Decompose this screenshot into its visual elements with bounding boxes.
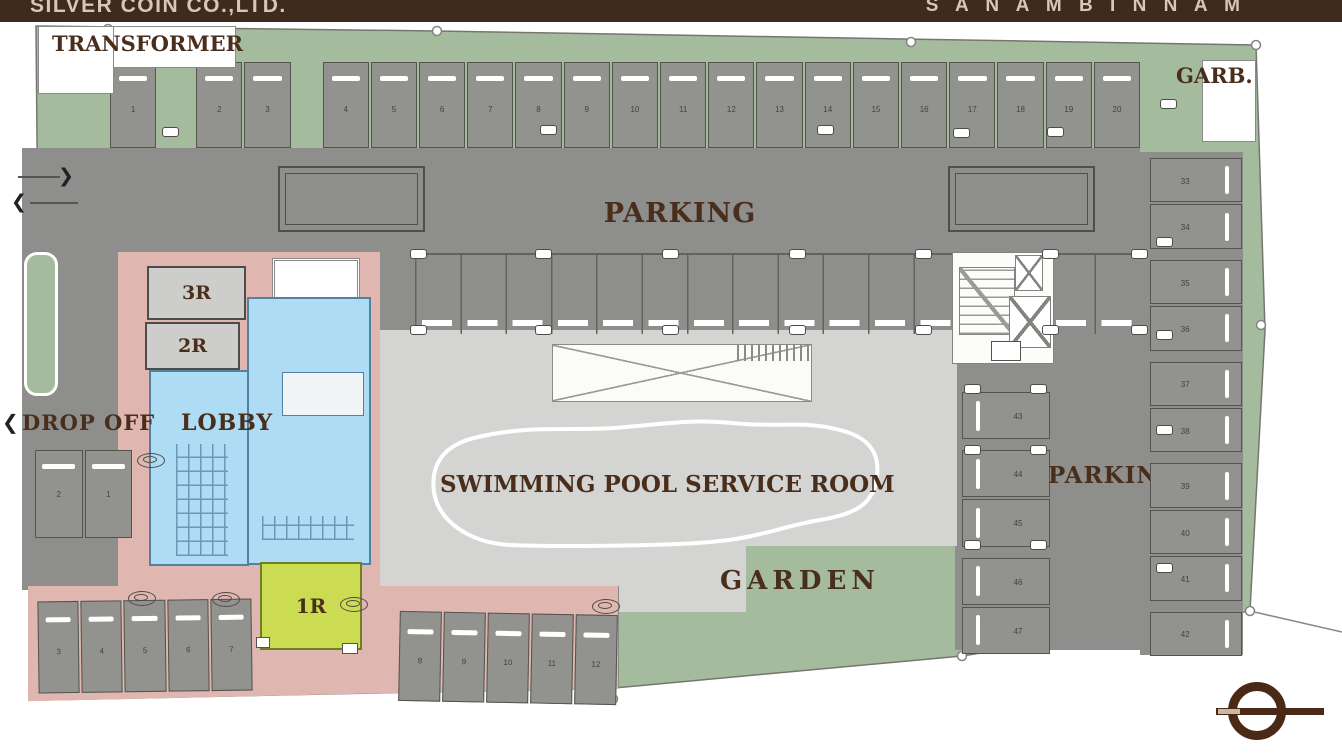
stall-marking	[1225, 213, 1230, 241]
wheel-stop-icon	[1047, 127, 1064, 137]
utility-box	[256, 637, 270, 648]
stall-number: 18	[998, 105, 1042, 114]
stall-number: 6	[169, 645, 208, 655]
stall-marking	[1225, 472, 1230, 500]
parking-stall: 15	[853, 62, 899, 148]
parking-stall: 13	[756, 62, 802, 148]
wheel-stop-icon	[1156, 330, 1173, 340]
stall-marking	[408, 629, 434, 634]
stall-marking	[218, 615, 243, 620]
stall-number: 7	[212, 645, 251, 655]
parking-stall: 6	[167, 599, 209, 692]
stall-marking	[452, 630, 478, 635]
stall-number: 42	[1151, 630, 1219, 639]
room-2r: 2R	[145, 322, 240, 370]
stall-number: 9	[565, 105, 609, 114]
stall-number: 7	[468, 105, 512, 114]
stall-marking	[976, 615, 981, 645]
parking-stall: 8	[515, 62, 561, 148]
stall-marking	[976, 459, 981, 489]
stall-number: 45	[987, 519, 1049, 528]
exit-arrow-line	[30, 202, 78, 204]
lobby-furniture	[176, 444, 228, 556]
stall-marking	[1055, 76, 1083, 81]
stall-marking	[1225, 620, 1230, 648]
stall-marking	[119, 76, 147, 81]
room-2r-label: 2R	[178, 335, 207, 357]
stall-number: 6	[420, 105, 464, 114]
stall-number: 33	[1151, 177, 1219, 186]
wheel-stop-icon	[964, 540, 981, 550]
stall-number: 11	[532, 658, 572, 668]
stall-number: 3	[245, 105, 289, 114]
arrow-right-icon: ❯	[58, 165, 74, 187]
stall-marking	[1225, 268, 1230, 296]
parking-stall: 11	[530, 613, 574, 704]
stall-number: 37	[1151, 380, 1219, 389]
lobby-inner-room	[282, 372, 364, 416]
stall-number: 9	[444, 657, 484, 667]
stall-marking	[1225, 370, 1230, 398]
wheel-stop-icon	[789, 249, 806, 259]
stall-number: 12	[709, 105, 753, 114]
lobby-label: LOBBY	[181, 410, 273, 436]
parking-stall: 35	[1150, 260, 1242, 304]
stall-marking	[1225, 416, 1230, 444]
wheel-stop-icon	[1131, 249, 1148, 259]
planter-icon	[137, 453, 165, 468]
stall-marking	[814, 76, 842, 81]
north-indicator-icon	[1216, 708, 1324, 715]
parking-stall: 18	[997, 62, 1043, 148]
stall-number: 34	[1151, 223, 1219, 232]
parking-stall: 20	[1094, 62, 1140, 148]
stall-marking	[621, 76, 649, 81]
ramp	[552, 344, 812, 402]
stall-number: 4	[82, 646, 121, 656]
parking-stall: 12	[574, 614, 618, 705]
parking-stall: 39	[1150, 463, 1242, 507]
parking-stall: 7	[210, 599, 252, 692]
stall-number: 17	[950, 105, 994, 114]
parking-stall: 47	[962, 607, 1050, 654]
stall-marking	[910, 76, 938, 81]
wheel-stop-icon	[1030, 540, 1047, 550]
stall-marking	[332, 76, 360, 81]
garden-label: GARDEN	[700, 566, 900, 596]
shaft-icon	[1015, 255, 1043, 291]
pool-service-room-label: SWIMMING POOL SERVICE ROOM	[440, 471, 860, 498]
parking-stall: 43	[962, 392, 1050, 439]
parking-stall: 10	[612, 62, 658, 148]
drop-off-stalls: 2 1	[35, 450, 132, 538]
wheel-stop-icon	[915, 249, 932, 259]
parking-stall: 10	[486, 613, 530, 704]
stall-marking	[92, 464, 125, 469]
stall-marking	[976, 566, 981, 596]
stall-number: 14	[806, 105, 850, 114]
aisle-planter-frame-left	[278, 166, 425, 232]
stall-number: 13	[757, 105, 801, 114]
stall-number: 4	[324, 105, 368, 114]
stall-number: 40	[1151, 529, 1219, 538]
site-plan: 1 2 3 4 5 6 7 8 9 10	[0, 0, 1342, 754]
stall-marking	[1103, 76, 1131, 81]
wheel-stop-icon	[915, 325, 932, 335]
parking-stall: 14	[805, 62, 851, 148]
parking-stall: 3	[244, 62, 290, 148]
wheel-stop-icon	[1156, 425, 1173, 435]
stall-marking	[669, 76, 697, 81]
utility-box	[342, 643, 358, 654]
stall-number: 5	[125, 646, 164, 656]
parking-row-top: 1 2 3 4 5 6 7 8 9 10	[110, 62, 1140, 148]
parking-stall: 40	[1150, 510, 1242, 554]
wheel-stop-icon	[162, 127, 179, 137]
stall-marking	[958, 76, 986, 81]
parking-stall: 6	[419, 62, 465, 148]
arrow-left-icon: ❮	[2, 410, 19, 434]
stall-number: 47	[987, 627, 1049, 636]
wheel-stop-icon	[662, 325, 679, 335]
parking-stall: 9	[564, 62, 610, 148]
stall-marking	[132, 616, 157, 621]
stall-marking	[573, 76, 601, 81]
stall-number: 8	[400, 656, 440, 666]
stall-number: 35	[1151, 279, 1219, 288]
stair-icon	[959, 267, 1015, 335]
stall-number: 12	[576, 659, 616, 669]
wheel-stop-icon	[662, 249, 679, 259]
stall-marking	[976, 401, 981, 431]
stall-number: 10	[488, 658, 528, 668]
wheel-stop-icon	[1160, 99, 1177, 109]
stall-number: 3	[39, 647, 78, 657]
wheel-stop-icon	[410, 249, 427, 259]
stall-number: 1	[86, 490, 132, 499]
stall-number: 1	[111, 105, 155, 114]
parking-stall: 1	[85, 450, 133, 538]
aisle-planter-frame-right	[948, 166, 1095, 232]
arrow-left-icon: ❮	[11, 191, 27, 213]
parking-stall: 4	[81, 600, 123, 693]
company-title: SILVER COIN CO.,LTD.	[30, 0, 287, 18]
stall-number: 41	[1151, 575, 1219, 584]
planter-icon	[212, 592, 240, 607]
stall-number: 5	[372, 105, 416, 114]
wheel-stop-icon	[964, 384, 981, 394]
stall-number: 8	[516, 105, 560, 114]
wheel-stop-icon	[540, 125, 557, 135]
wheel-stop-icon	[1156, 237, 1173, 247]
stall-marking	[380, 76, 408, 81]
stall-marking	[1225, 518, 1230, 546]
stall-marking	[253, 76, 281, 81]
parking-stall: 11	[660, 62, 706, 148]
stall-number: 46	[987, 578, 1049, 587]
stall-number: 20	[1095, 105, 1139, 114]
lobby-furniture	[262, 516, 354, 540]
title-banner: SILVER COIN CO.,LTD. S A N A M B I N N A…	[0, 0, 1342, 22]
parking-stall: 36	[1150, 306, 1242, 350]
wheel-stop-icon	[1030, 384, 1047, 394]
parking-stall: 33	[1150, 158, 1242, 202]
parking-stall: 12	[708, 62, 754, 148]
parking-stall: 7	[467, 62, 513, 148]
stall-number: 43	[987, 412, 1049, 421]
stall-marking	[524, 76, 552, 81]
stall-number: 19	[1047, 105, 1091, 114]
stall-marking	[1225, 564, 1230, 592]
stall-marking	[175, 615, 200, 620]
parking-column-inner: 43 44 45 46 47	[962, 392, 1050, 654]
transformer-label: TRANSFORMER	[52, 31, 243, 56]
room-3r: 3R	[147, 266, 246, 320]
wheel-stop-icon	[953, 128, 970, 138]
stall-marking	[862, 76, 890, 81]
stall-marking	[428, 76, 456, 81]
parking-stall: 5	[371, 62, 417, 148]
planter-icon	[592, 599, 620, 614]
stall-marking	[1225, 166, 1230, 194]
stall-marking	[584, 632, 610, 637]
parking-stall: 1	[110, 62, 156, 148]
planter-icon	[128, 591, 156, 606]
stall-marking	[1006, 76, 1034, 81]
wheel-stop-icon	[535, 249, 552, 259]
wheel-stop-icon	[535, 325, 552, 335]
stall-marking	[205, 76, 233, 81]
wheel-stop-icon	[817, 125, 834, 135]
planter-icon	[340, 597, 368, 612]
stall-marking	[89, 616, 114, 621]
building-core	[952, 252, 1054, 364]
parking-stall: 44	[962, 450, 1050, 497]
wheel-stop-icon	[1156, 563, 1173, 573]
stall-marking	[1225, 314, 1230, 342]
wheel-stop-icon	[964, 445, 981, 455]
wheel-stop-icon	[1030, 445, 1047, 455]
wheel-stop-icon	[789, 325, 806, 335]
stall-marking	[717, 76, 745, 81]
parking-column-right: 33 34 35 36 37 38 39 40 41 42	[1150, 158, 1242, 656]
stall-number: 2	[36, 490, 82, 499]
parking-stall: 2	[196, 62, 242, 148]
parking-stall: 2	[35, 450, 83, 538]
stall-number: 15	[854, 105, 898, 114]
parking-stall: 9	[442, 612, 486, 703]
room-1r-label: 1R	[296, 594, 327, 618]
stall-number: 2	[197, 105, 241, 114]
stall-marking	[765, 76, 793, 81]
parking-stall: 16	[901, 62, 947, 148]
parking-stall: 5	[124, 600, 166, 693]
garbage-label: GARB.	[1176, 63, 1253, 88]
wheel-stop-icon	[1042, 325, 1059, 335]
parking-stall: 8	[398, 611, 442, 702]
parking-stall: 4	[323, 62, 369, 148]
parking-stall: 3	[37, 601, 79, 694]
parking-stall: 42	[1150, 612, 1242, 656]
stall-marking	[540, 632, 566, 637]
stall-number: 11	[661, 105, 705, 114]
stall-marking	[42, 464, 75, 469]
room-3r-label: 3R	[182, 282, 211, 304]
parking-row-bottom-middle: 8 9 10 11 12	[398, 611, 618, 705]
stall-number: 39	[1151, 482, 1219, 491]
stall-marking	[976, 508, 981, 538]
parking-area-label-center: PARKING	[555, 198, 805, 229]
stall-marking	[476, 76, 504, 81]
wheel-stop-icon	[1131, 325, 1148, 335]
stall-marking	[46, 617, 71, 622]
drop-off-label: DROP OFF	[22, 410, 155, 435]
parking-row-bottom-left: 3 4 5 6 7	[37, 599, 252, 694]
entry-arrow-line	[18, 176, 60, 178]
wheel-stop-icon	[410, 325, 427, 335]
stall-number: 10	[613, 105, 657, 114]
project-title: S A N A M B I N N A M	[926, 0, 1246, 17]
stall-number: 16	[902, 105, 946, 114]
stall-number: 44	[987, 470, 1049, 479]
median-island	[24, 252, 58, 396]
core-room	[991, 341, 1021, 361]
wheel-stop-icon	[1042, 249, 1059, 259]
parking-stall: 37	[1150, 362, 1242, 406]
parking-stall: 46	[962, 558, 1050, 605]
stall-marking	[496, 631, 522, 636]
